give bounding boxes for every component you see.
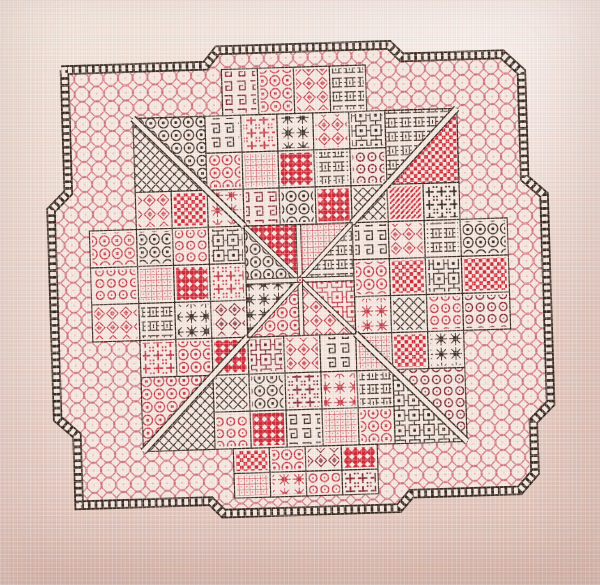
- embroidery-photo: [0, 0, 600, 585]
- embroidery-design: [48, 52, 568, 542]
